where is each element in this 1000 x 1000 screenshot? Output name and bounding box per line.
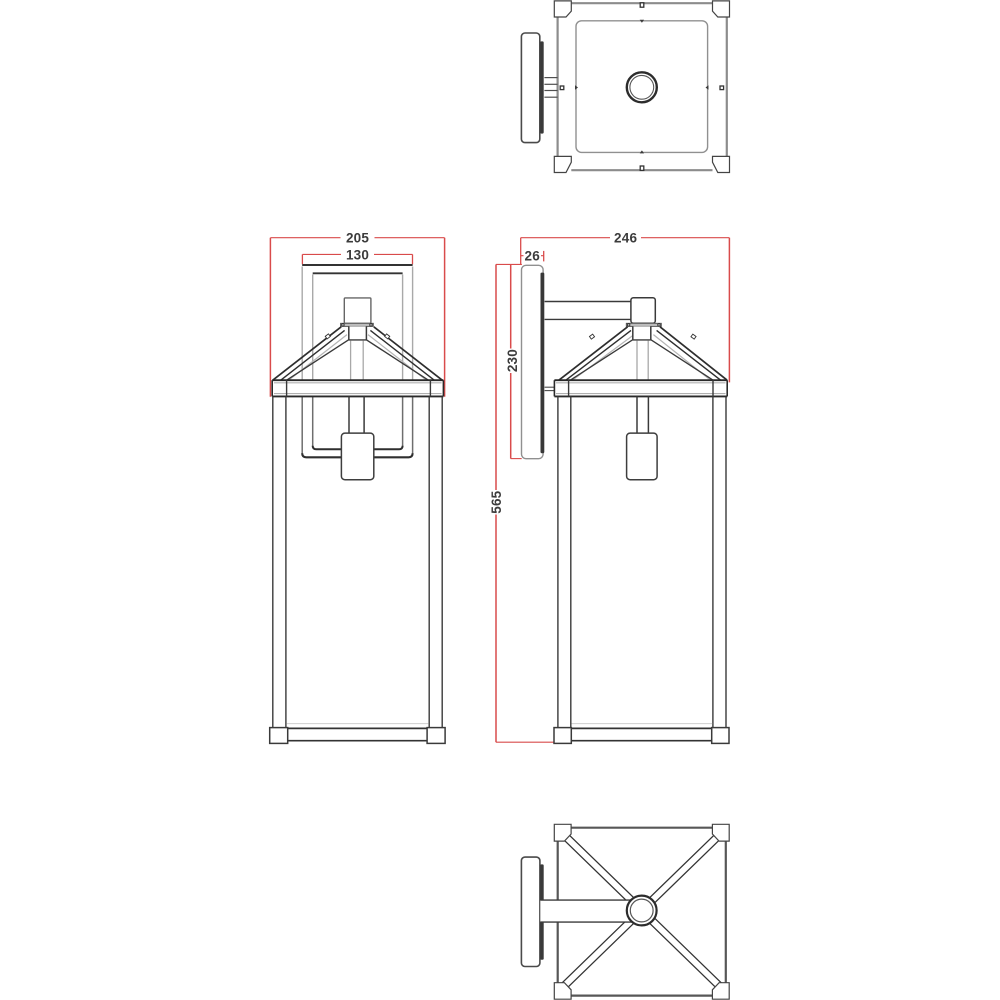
svg-text:205: 205 [346, 231, 369, 246]
svg-text:246: 246 [614, 231, 637, 246]
svg-text:130: 130 [346, 247, 369, 262]
svg-text:26: 26 [524, 249, 540, 264]
svg-text:565: 565 [489, 490, 504, 513]
svg-text:230: 230 [505, 349, 520, 372]
